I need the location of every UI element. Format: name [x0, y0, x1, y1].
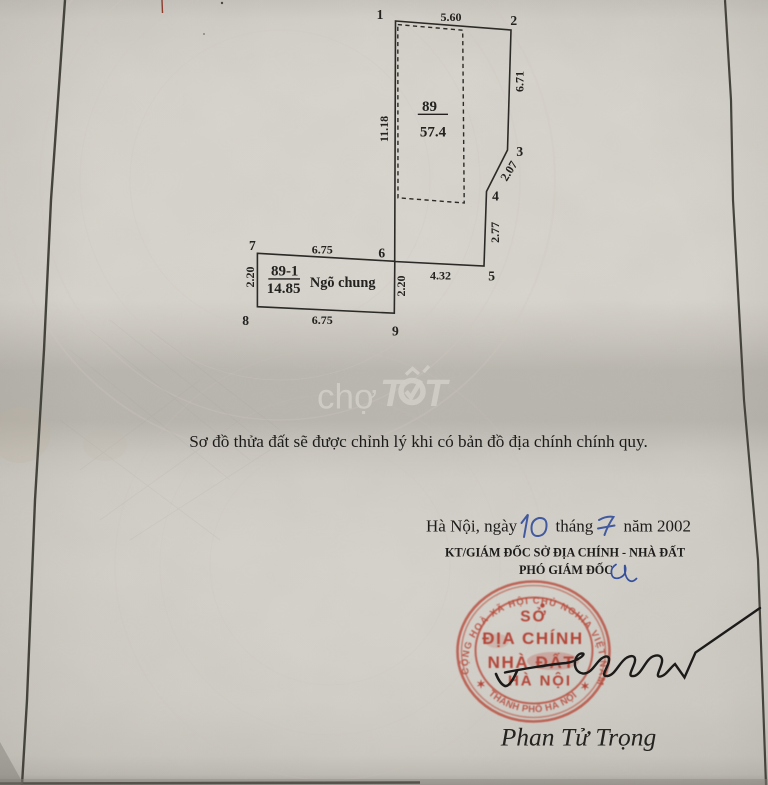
- svg-text:6: 6: [378, 245, 385, 260]
- svg-text:Sơ đồ thửa đất sẽ được chỉnh l: Sơ đồ thửa đất sẽ được chỉnh lý khi có b…: [189, 432, 648, 451]
- svg-text:Hà Nội, ngày: Hà Nội, ngày: [426, 517, 518, 536]
- svg-text:89-1: 89-1: [271, 264, 299, 280]
- svg-text:2.77: 2.77: [488, 222, 502, 243]
- svg-text:8: 8: [242, 313, 249, 328]
- svg-text:tháng: tháng: [556, 517, 594, 536]
- svg-text:✶: ✶: [580, 681, 589, 693]
- svg-text:9: 9: [392, 323, 399, 338]
- svg-text:5: 5: [488, 269, 495, 284]
- svg-text:chợ: chợ: [317, 378, 377, 417]
- svg-text:4.32: 4.32: [430, 269, 451, 283]
- svg-text:2.20: 2.20: [394, 276, 408, 297]
- svg-text:PHÓ GIÁM ĐỐC: PHÓ GIÁM ĐỐC: [519, 562, 613, 577]
- svg-text:2: 2: [510, 13, 517, 28]
- svg-text:1: 1: [377, 7, 384, 22]
- svg-text:6.75: 6.75: [312, 242, 333, 256]
- svg-text:89: 89: [422, 99, 437, 115]
- svg-text:SỞ: SỞ: [520, 608, 548, 626]
- svg-text:Ngõ chung: Ngõ chung: [310, 275, 376, 291]
- svg-text:6.75: 6.75: [312, 313, 333, 327]
- svg-text:6.71: 6.71: [513, 71, 527, 92]
- svg-text:Phan Tử Trọng: Phan Tử Trọng: [500, 723, 657, 752]
- svg-text:năm 2002: năm 2002: [624, 517, 692, 536]
- svg-text:2.20: 2.20: [243, 267, 257, 288]
- svg-text:5.60: 5.60: [441, 10, 462, 24]
- svg-text:4: 4: [492, 189, 499, 204]
- svg-text:57.4: 57.4: [420, 125, 447, 141]
- svg-text:7: 7: [249, 238, 256, 253]
- svg-text:14.85: 14.85: [267, 281, 301, 297]
- svg-text:11.18: 11.18: [377, 116, 391, 142]
- svg-text:3: 3: [516, 144, 523, 159]
- svg-text:KT/GIÁM ĐỐC SỞ ĐỊA CHÍNH - NHÀ: KT/GIÁM ĐỐC SỞ ĐỊA CHÍNH - NHÀ ĐẤT: [445, 545, 685, 560]
- svg-text:T: T: [424, 373, 450, 415]
- svg-text:✶: ✶: [476, 679, 485, 691]
- svg-text:HÀ NỘI: HÀ NỘI: [508, 672, 572, 690]
